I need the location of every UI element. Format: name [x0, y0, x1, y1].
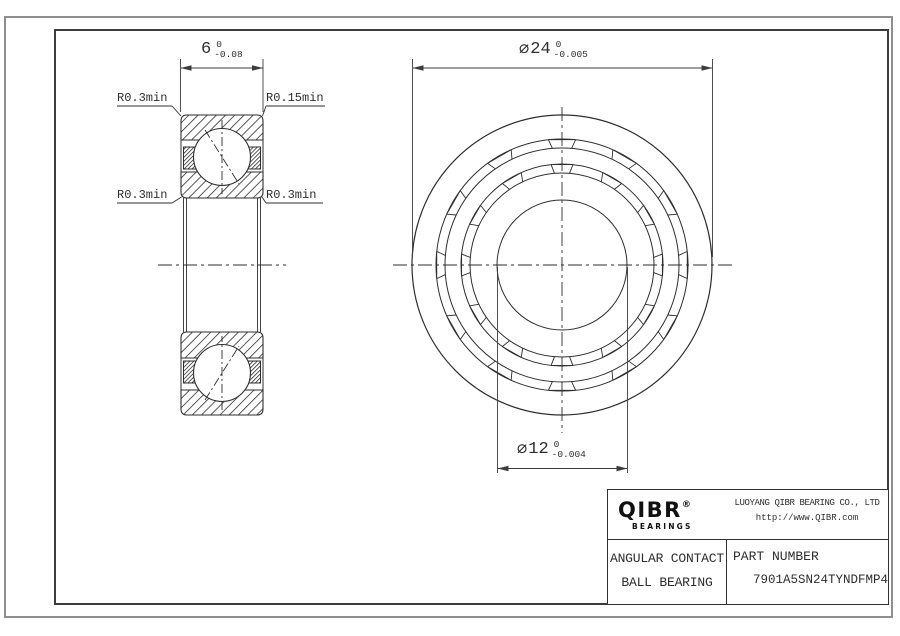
outer-diameter-value: 24 [530, 40, 550, 59]
part-number-value: 7901A5SN24TYNDFMP4 [753, 570, 888, 590]
brand-logo-text: QIBR® [618, 495, 726, 521]
width-dimension-tolerance: 0 -0.08 [214, 40, 243, 59]
title-block: QIBR® BEARINGS LUOYANG QIBR BEARING CO.,… [607, 489, 889, 605]
radius-callout-mid-right: R0.3min [266, 189, 316, 202]
bore-diameter-value: 12 [528, 440, 548, 459]
title-block-header-row: QIBR® BEARINGS LUOYANG QIBR BEARING CO.,… [608, 490, 888, 540]
company-info: LUOYANG QIBR BEARING CO., LTD http://www… [726, 490, 888, 539]
bore-diameter-dimension: ⌀ 12 0 -0.004 [517, 440, 586, 459]
diameter-symbol: ⌀ [517, 440, 527, 459]
radius-callout-mid-left: R0.3min [117, 189, 167, 202]
radius-callout-top-left: R0.3min [117, 92, 167, 105]
part-number-cell: PART NUMBER 7901A5SN24TYNDFMP4 [726, 540, 888, 604]
outer-diameter-dimension: ⌀ 24 0 -0.005 [519, 40, 588, 59]
engineering-drawing-page: 6 0 -0.08 ⌀ 24 0 -0.005 ⌀ 12 0 -0.004 R0… [0, 0, 900, 636]
width-dimension-value: 6 [201, 40, 211, 59]
width-dimension: 6 0 -0.08 [200, 40, 243, 59]
outer-diameter-tolerance: 0 -0.005 [554, 40, 588, 59]
brand-logo-subtitle: BEARINGS [632, 522, 726, 531]
brand-logo: QIBR® BEARINGS [608, 490, 726, 539]
bore-diameter-tolerance: 0 -0.004 [552, 440, 586, 459]
radius-callout-top-right: R0.15min [266, 92, 324, 105]
registered-trademark-icon: ® [682, 500, 691, 510]
product-type-line1: ANGULAR CONTACT [608, 547, 726, 571]
title-block-detail-row: ANGULAR CONTACT BALL BEARING PART NUMBER… [608, 540, 888, 604]
company-name: LUOYANG QIBR BEARING CO., LTD [726, 497, 888, 509]
company-website: http://www.QIBR.com [726, 512, 888, 524]
product-type-line2: BALL BEARING [608, 571, 726, 595]
diameter-symbol: ⌀ [519, 40, 529, 59]
part-number-label: PART NUMBER [733, 547, 888, 567]
product-type-cell: ANGULAR CONTACT BALL BEARING [608, 540, 726, 604]
